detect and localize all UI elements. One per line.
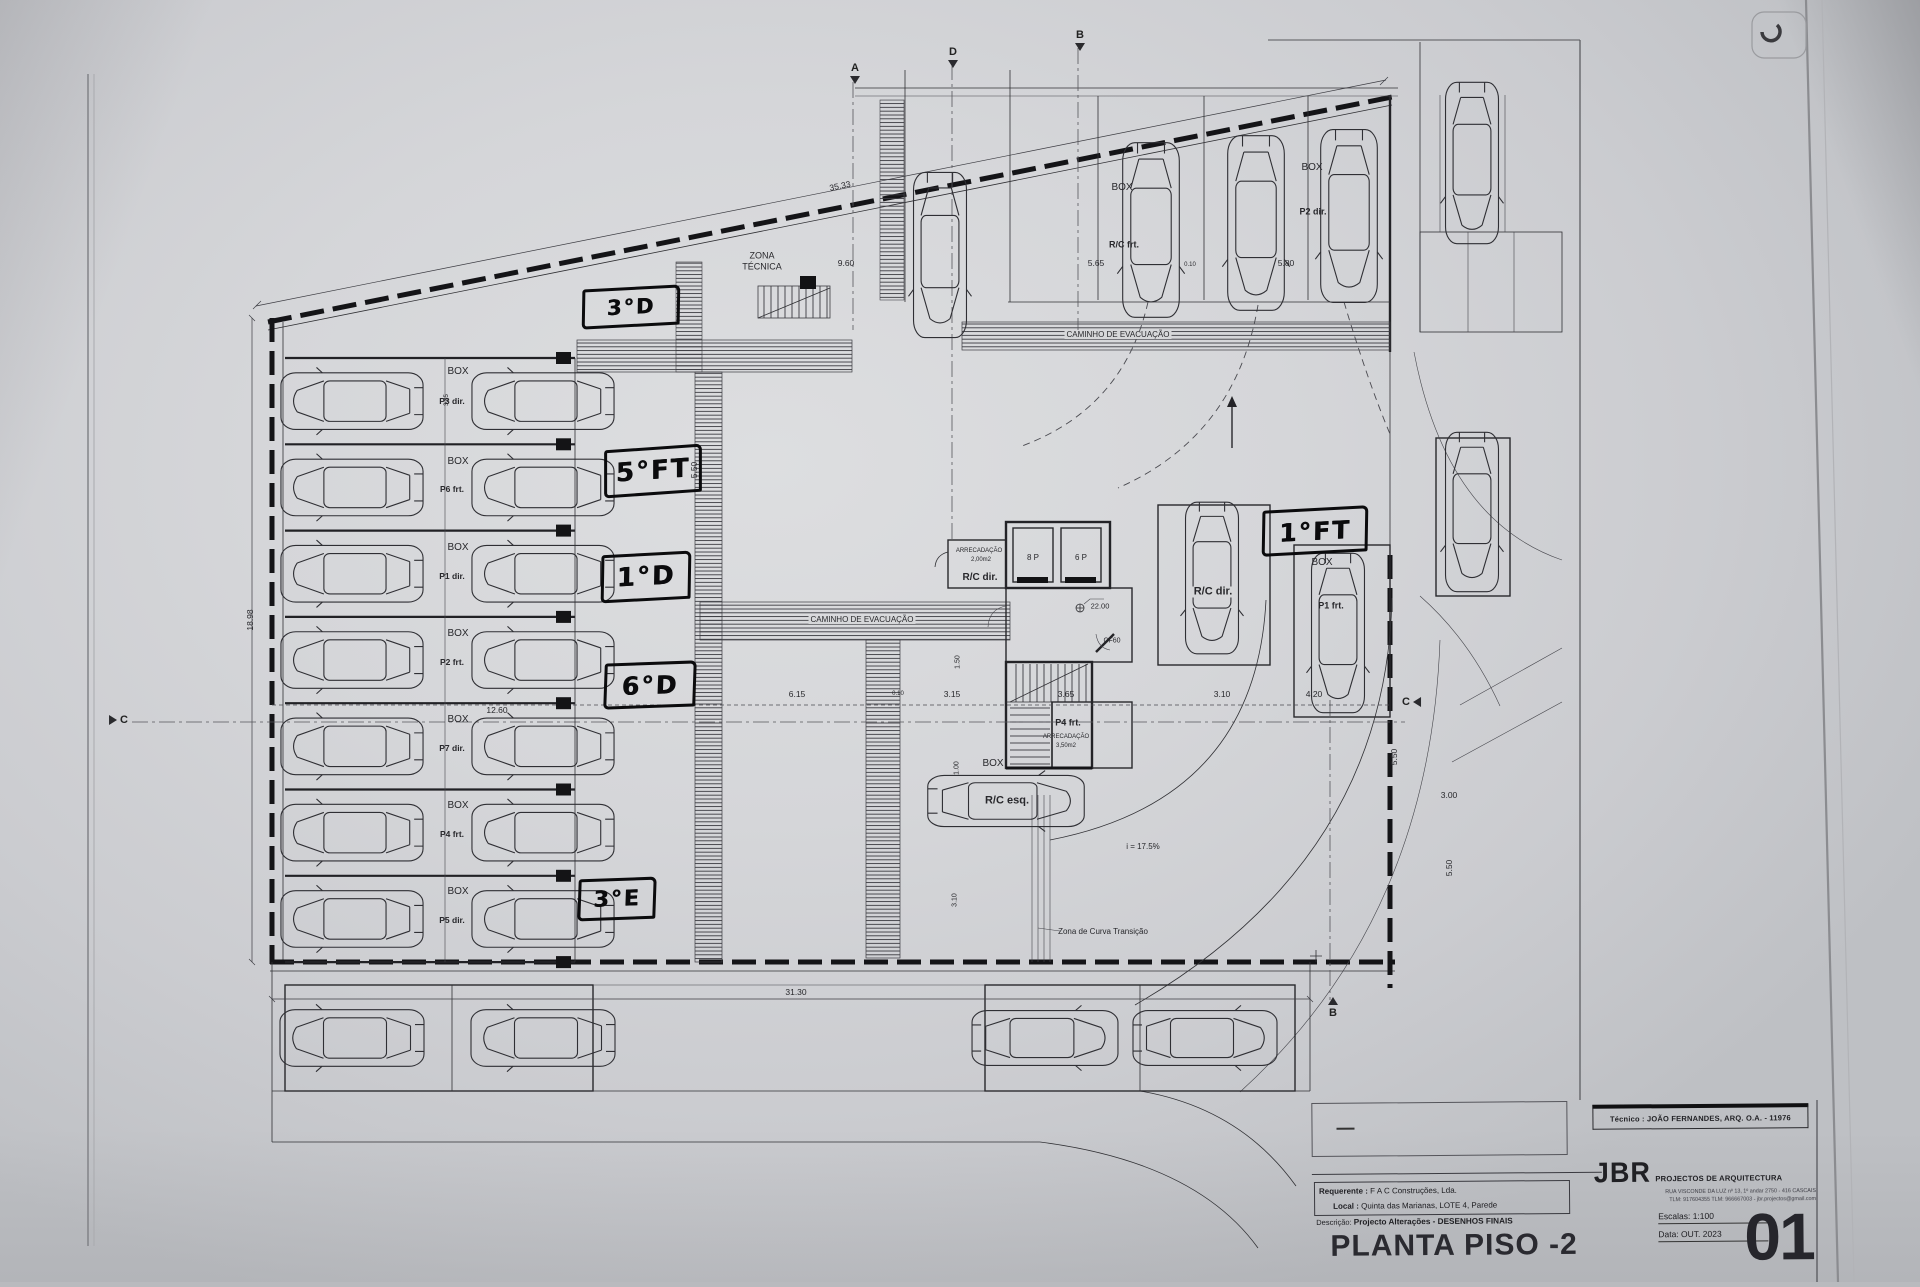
handwritten-annotation: 5°FT [604, 444, 702, 499]
stall-row-3: P1 dir. [439, 572, 465, 581]
box-row-4: BOX [447, 629, 468, 639]
level-22: 22.00 [1091, 602, 1110, 610]
screenshot-root: { "title_block": { "tecnico": "Técnico :… [0, 0, 1920, 1282]
section-letter: A [851, 62, 859, 74]
p1-frt: P1 frt. [1318, 602, 1344, 611]
car-icon [281, 799, 423, 866]
car-icon [281, 454, 423, 521]
section-marker-c: C [108, 714, 128, 726]
sheet-frame [88, 0, 1854, 1282]
cf60: CF60 [1103, 638, 1120, 645]
handwritten-annotation: 1°FT [1262, 505, 1369, 557]
dim-5-50-street: 5.50 [1445, 860, 1454, 877]
car-icon [1180, 502, 1243, 654]
rc-esq: R/C esq. [985, 796, 1029, 807]
dim-0-10-top: 0.10 [1184, 262, 1196, 268]
hatch-zones [577, 262, 1390, 962]
zona-tecnica-line1: ZONA [749, 252, 774, 261]
handwritten-annotation: 3°E [577, 877, 656, 922]
rc-dir-core: R/C dir. [962, 573, 997, 583]
section-marker-d: D [948, 46, 958, 68]
car-icon [972, 1005, 1118, 1070]
dim-3-15: 3.15 [944, 690, 961, 699]
handwritten-annotation: 1°D [601, 551, 692, 604]
caminho-evacuacao-mid: CAMINHO DE EVACUAÇÃO [809, 616, 916, 624]
handwritten-annotation: 6°D [603, 660, 697, 709]
car-icon [472, 799, 614, 866]
section-marker-b: B [1328, 997, 1338, 1019]
firm-name: PROJECTOS DE ARQUITECTURA [1655, 1173, 1782, 1183]
bottom-parking [269, 962, 1313, 1248]
car-icon [281, 367, 423, 434]
box-row-7: BOX [447, 887, 468, 897]
requerente-value: F A C Construções, Lda. [1370, 1186, 1457, 1196]
section-triangle-icon [850, 76, 860, 84]
box-row-6: BOX [447, 801, 468, 811]
local-value: Quinta das Marianas, LOTE 4, Parede [1361, 1201, 1497, 1211]
zona-curva: Zona de Curva Transição [1058, 928, 1148, 936]
building-outline [249, 77, 1395, 988]
dim-3-00: 3.00 [1441, 791, 1458, 800]
box-rc-esq: BOX [982, 759, 1003, 769]
p2-dir: P2 dir. [1299, 208, 1326, 217]
lift-8p: 8 P [1027, 554, 1039, 562]
dim-5-50-right: 5.50 [1390, 749, 1399, 766]
section-letter: D [949, 46, 957, 58]
car-icon [281, 885, 423, 952]
arrecadacao1-line1: ARRECADAÇÃO [956, 548, 1002, 554]
arrecadacao2-line2: 3,50m2 [1056, 743, 1076, 749]
dim-18-98: 18.98 [246, 609, 255, 630]
drawing-title: PLANTA PISO -2 [1330, 1227, 1630, 1263]
firm-identity: JBR PROJECTOS DE ARQUITECTURA RUA VISCON… [1594, 1156, 1816, 1204]
dim-12-60: 12.60 [486, 706, 507, 715]
dim-31-30: 31.30 [785, 988, 806, 997]
car-icon [1117, 143, 1184, 318]
handwritten-annotation: 3°D [582, 284, 681, 329]
stall-row-2: P6 frt. [440, 485, 464, 494]
car-icon [1222, 136, 1289, 311]
firm-logo: JBR [1594, 1157, 1651, 1190]
dim-9-60: 9.60 [838, 259, 855, 268]
box-top-1: BOX [1111, 183, 1132, 193]
car-icon [1133, 1005, 1277, 1070]
section-triangle-icon [109, 715, 117, 725]
requerente-label: Requerente : [1319, 1187, 1368, 1196]
car-icon [281, 540, 423, 607]
sheet-number: 01 [1744, 1198, 1814, 1275]
section-letter: C [1402, 696, 1410, 708]
car-icon [472, 713, 614, 780]
lift-6p: 6 P [1075, 554, 1087, 562]
section-triangle-icon [1328, 997, 1338, 1005]
client-field: Requerente : F A C Construções, Lda. Loc… [1314, 1180, 1570, 1216]
stall-row-7: P5 dir. [439, 916, 465, 925]
section-triangle-icon [1075, 43, 1085, 51]
plan-drawing [0, 0, 1920, 1282]
car-icon [280, 1004, 424, 1071]
dim-4-20: 4.20 [1306, 690, 1323, 699]
car-icon [472, 540, 614, 607]
ramp-slope: i = 17.5% [1126, 843, 1160, 851]
car-icon [472, 454, 614, 521]
arrecadacao2-line1: ARRECADAÇÃO [1043, 734, 1089, 740]
local-label: Local : [1333, 1202, 1359, 1211]
section-letter: C [120, 714, 128, 726]
car-icon [281, 713, 423, 780]
dim-5-80: 5.80 [1278, 259, 1295, 268]
rc-dir-right: R/C dir. [1192, 587, 1235, 598]
dim-3-10-v: 3.10 [952, 893, 959, 907]
car-icon [281, 626, 423, 693]
descricao-value: Projecto Alterações - DESENHOS FINAIS [1354, 1216, 1513, 1226]
dim-6-15: 6.15 [789, 690, 806, 699]
car-icon [472, 367, 614, 434]
caminho-evacuacao-top: CAMINHO DE EVACUAÇÃO [1065, 331, 1172, 339]
description-field: Descrição: Projecto Alterações - DESENHO… [1316, 1216, 1616, 1227]
dim-3-65: 3.65 [1058, 690, 1075, 699]
car-icon [472, 626, 614, 693]
zona-tecnica-line2: TÉCNICA [742, 263, 782, 272]
p4-frt-core: P4 frt. [1055, 719, 1081, 728]
dim-3-85: 3.85 [444, 394, 450, 406]
section-lines [132, 48, 1405, 1000]
section-marker-b: B [1075, 29, 1085, 51]
section-letter: B [1076, 29, 1084, 41]
box-row-2: BOX [447, 457, 468, 467]
box-row-5: BOX [447, 715, 468, 725]
right-street [1414, 42, 1562, 762]
titleblock-empty-field [1311, 1101, 1567, 1157]
section-triangle-icon [948, 60, 958, 68]
stall-row-5: P7 dir. [439, 744, 465, 753]
box-top-2: BOX [1301, 163, 1322, 173]
title-block: Técnico : JOÃO FERNANDES, ARQ. O.A. - 11… [1311, 1098, 1817, 1284]
box-row-1: BOX [447, 367, 468, 377]
divider-line [1312, 1172, 1602, 1175]
section-triangle-icon [1413, 697, 1421, 707]
box-right: BOX [1311, 558, 1332, 568]
section-marker-c: C [1402, 696, 1422, 708]
dim-3-10: 3.10 [1214, 690, 1231, 699]
car-icon [1440, 432, 1503, 591]
dim-5-65: 5.65 [1088, 259, 1105, 268]
architect-field: Técnico : JOÃO FERNANDES, ARQ. O.A. - 11… [1592, 1103, 1808, 1130]
descricao-label: Descrição: [1316, 1218, 1352, 1227]
dim-1-50: 1.50 [955, 655, 962, 669]
stall-row-6: P4 frt. [440, 830, 464, 839]
car-icon [908, 172, 971, 337]
floor-plan: ZONATÉCNICACAMINHO DE EVACUAÇÃOCAMINHO D… [0, 0, 1920, 1282]
car-icon [1440, 82, 1503, 243]
rc-frt: R/C frt. [1109, 241, 1139, 250]
box-row-3: BOX [447, 543, 468, 553]
arrecadacao1-line2: 2,00m2 [971, 557, 991, 563]
section-letter: B [1329, 1007, 1337, 1019]
dim-0-10-mid: 0.10 [892, 691, 904, 697]
stall-row-4: P2 frt. [440, 658, 464, 667]
section-marker-a: A [850, 62, 860, 84]
dim-1-00: 1.00 [954, 761, 961, 775]
